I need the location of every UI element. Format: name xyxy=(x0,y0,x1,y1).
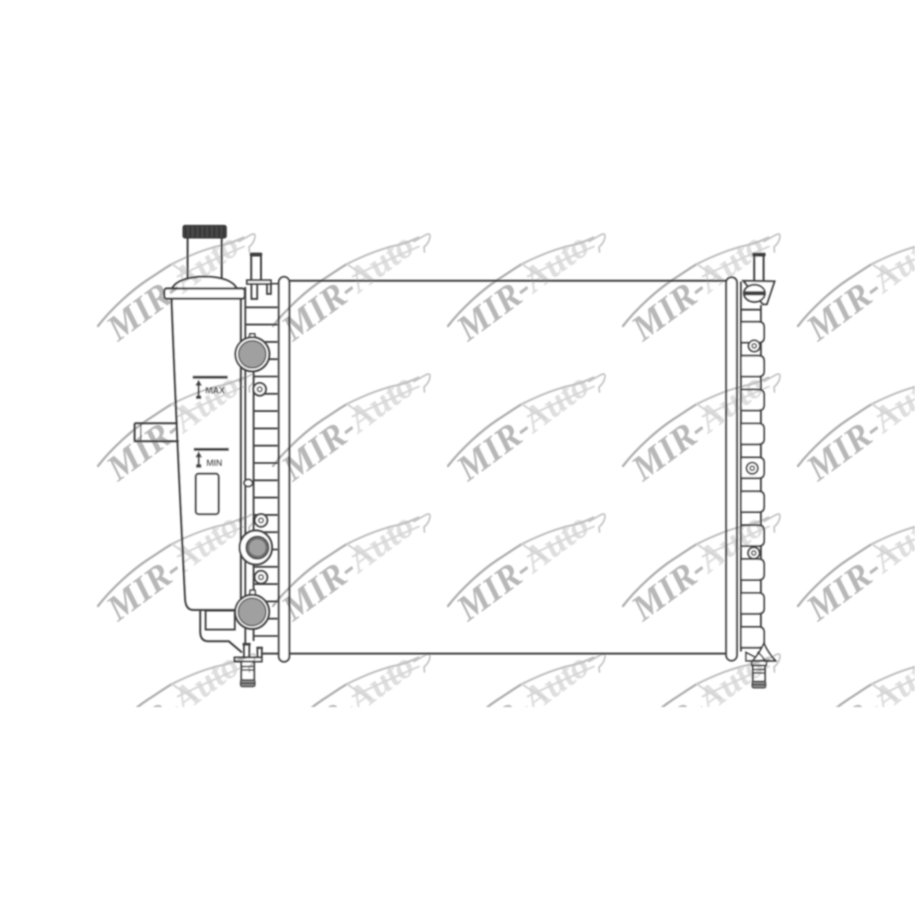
svg-text:MIN: MIN xyxy=(206,458,222,468)
